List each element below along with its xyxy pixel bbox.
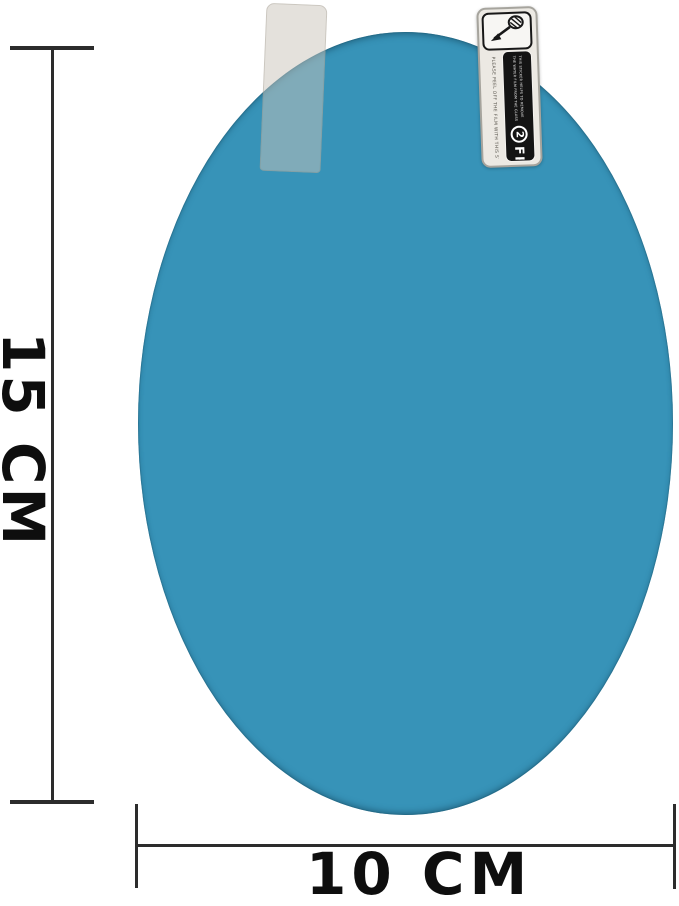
width-dimension-label: 10 CM (306, 850, 532, 898)
strip-note-line-1: THIS STICKER HELPS TO REMOVE (517, 56, 524, 122)
height-dimension-label: 15 CM (0, 332, 47, 537)
width-dimension-tick-left (135, 804, 138, 888)
label-side-note: PLEASE PEEL OFF THE FILM WITH THIS STICK… (484, 56, 505, 159)
peel-tab (260, 3, 328, 173)
front-sticker-label: PLEASE PEEL OFF THE FILM WITH THIS STICK… (476, 6, 543, 168)
peel-instruction-icon (481, 11, 532, 51)
label-strip-notes: THIS STICKER HELPS TO REMOVE THE WATER F… (511, 56, 524, 122)
label-title: FRONT (513, 146, 530, 160)
label-strip-content: THIS STICKER HELPS TO REMOVE THE WATER F… (503, 52, 535, 160)
height-dimension-cap-bottom (10, 800, 94, 804)
height-dimension-cap-top (10, 46, 94, 50)
oval-film (138, 32, 673, 815)
circled-2-icon: 2 (511, 126, 529, 144)
product-dimension-image: PLEASE PEEL OFF THE FILM WITH THIS STICK… (0, 0, 679, 906)
width-dimension-tick-right (673, 804, 676, 889)
